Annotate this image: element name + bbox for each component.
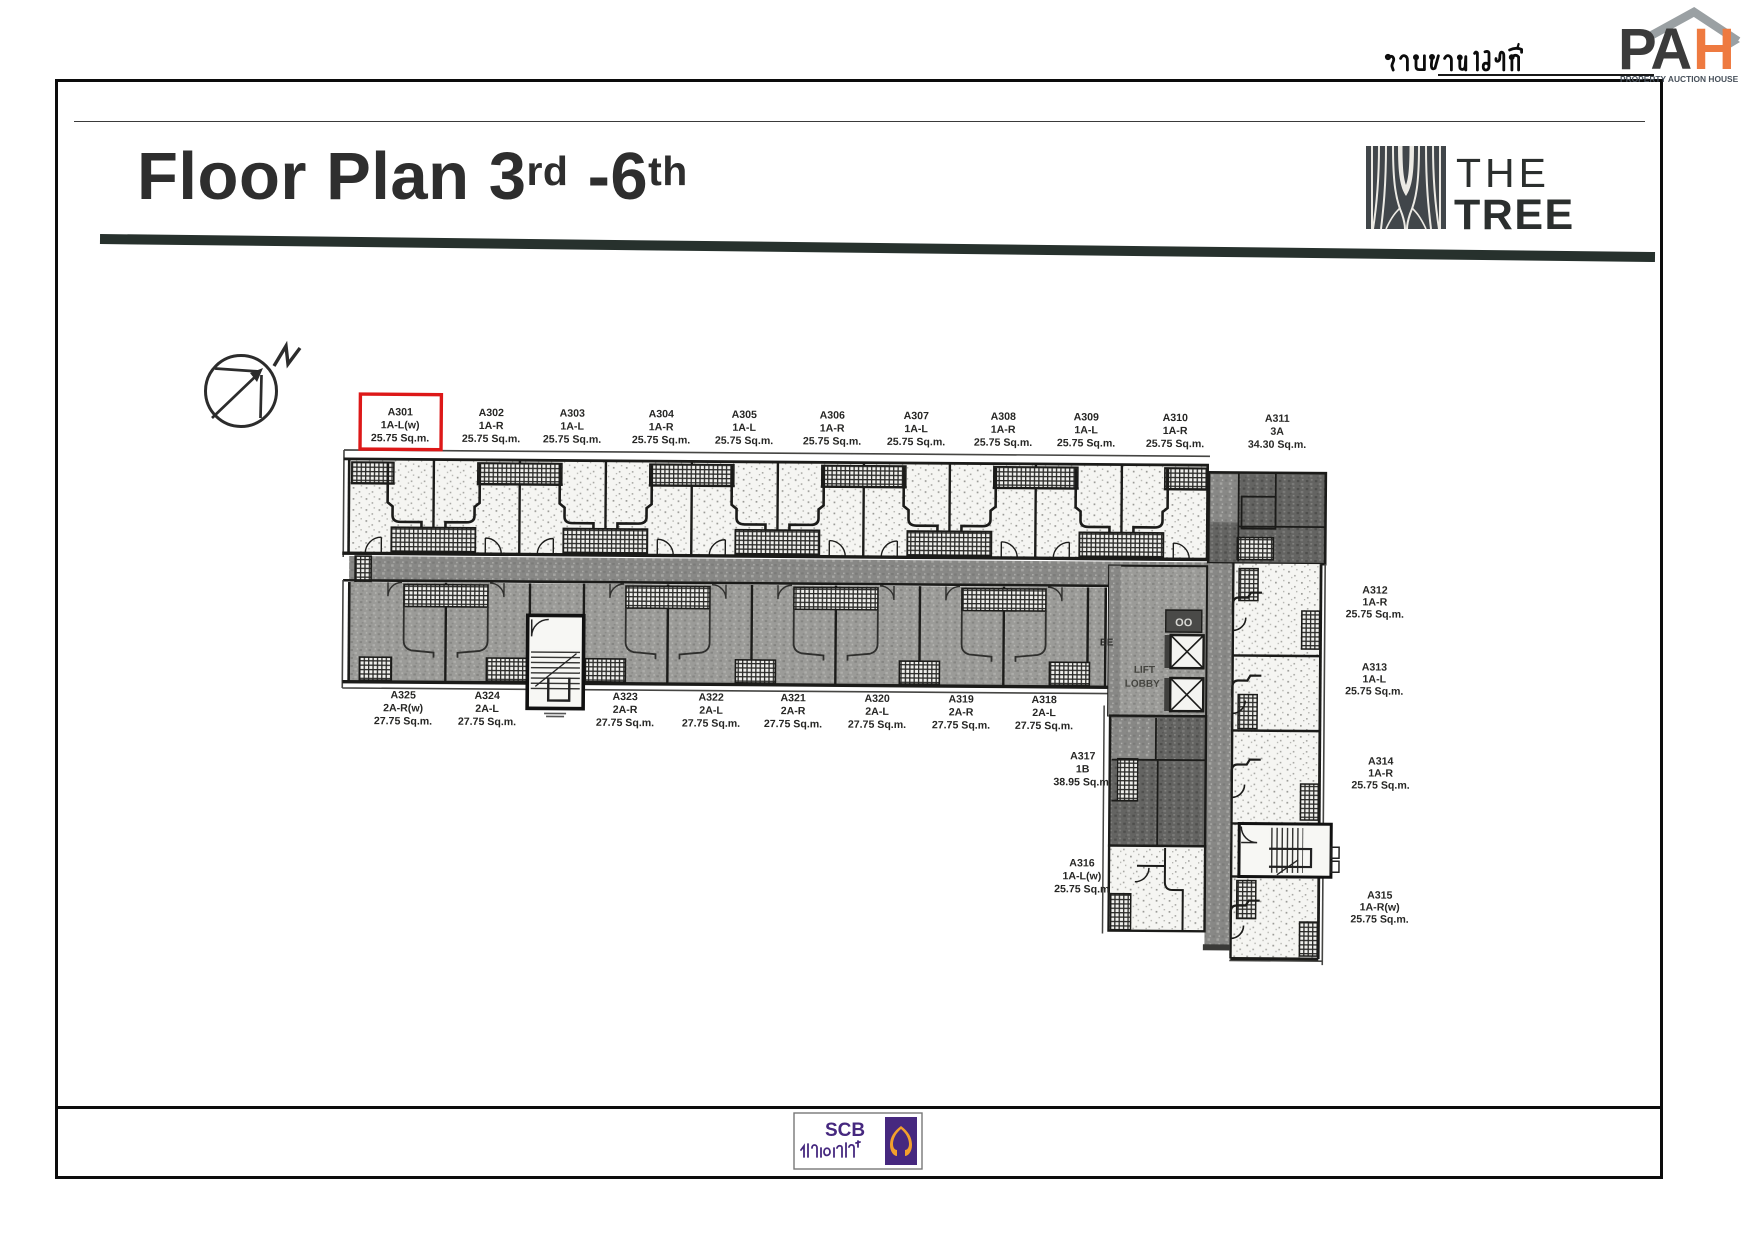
svg-text:25.75 Sq.m.: 25.75 Sq.m. [1350, 913, 1408, 925]
svg-text:1A-L: 1A-L [560, 421, 584, 433]
svg-text:A311: A311 [1265, 413, 1290, 425]
svg-text:2A-R(w): 2A-R(w) [383, 702, 423, 714]
svg-text:1B: 1B [1076, 763, 1090, 775]
svg-text:25.75 Sq.m.: 25.75 Sq.m. [462, 433, 520, 445]
svg-text:PA: PA [1618, 17, 1691, 82]
svg-text:A312: A312 [1362, 584, 1388, 596]
svg-text:A307: A307 [904, 410, 930, 422]
svg-text:1A-R(w): 1A-R(w) [1360, 901, 1400, 913]
svg-text:A310: A310 [1163, 412, 1189, 424]
svg-text:A309: A309 [1074, 411, 1100, 423]
svg-text:27.75 Sq.m.: 27.75 Sq.m. [848, 719, 906, 731]
svg-text:25.75 Sq.m.: 25.75 Sq.m. [1057, 437, 1115, 449]
svg-text:A321: A321 [780, 692, 806, 704]
svg-text:A320: A320 [864, 693, 890, 705]
svg-text:LIFT: LIFT [1134, 665, 1155, 676]
svg-text:A319: A319 [948, 693, 974, 705]
svg-text:A325: A325 [390, 689, 416, 701]
svg-text:25.75 Sq.m.: 25.75 Sq.m. [974, 437, 1032, 449]
svg-text:A302: A302 [479, 407, 505, 419]
svg-text:2A-R: 2A-R [781, 705, 806, 717]
svg-text:25.75 Sq.m.: 25.75 Sq.m. [803, 435, 861, 447]
svg-text:25.75 Sq.m.: 25.75 Sq.m. [371, 432, 429, 444]
svg-text:25.75 Sq.m.: 25.75 Sq.m. [1346, 608, 1404, 620]
svg-text:3A: 3A [1270, 426, 1284, 438]
svg-text:1A-R: 1A-R [991, 424, 1016, 436]
svg-text:25.75 Sq.m.: 25.75 Sq.m. [1345, 685, 1403, 697]
svg-text:THE: THE [1456, 150, 1550, 196]
svg-text:LOBBY: LOBBY [1125, 679, 1160, 690]
svg-text:2A-R: 2A-R [949, 706, 974, 718]
svg-text:A314: A314 [1368, 755, 1394, 767]
svg-text:27.75 Sq.m.: 27.75 Sq.m. [764, 718, 822, 730]
svg-text:1A-L: 1A-L [904, 423, 928, 435]
svg-text:1A-L(w): 1A-L(w) [381, 419, 420, 431]
svg-text:27.75 Sq.m.: 27.75 Sq.m. [1015, 720, 1073, 732]
svg-text:1A-R: 1A-R [479, 420, 504, 432]
svg-text:A301: A301 [388, 406, 414, 418]
svg-text:A322: A322 [698, 692, 724, 704]
svg-text:OO: OO [1175, 617, 1193, 629]
svg-text:A308: A308 [991, 411, 1017, 423]
svg-text:A324: A324 [474, 690, 500, 702]
svg-text:A315: A315 [1367, 889, 1393, 901]
svg-text:1A-R: 1A-R [820, 422, 845, 434]
svg-text:2A-L: 2A-L [475, 703, 499, 715]
svg-text:A304: A304 [649, 408, 675, 420]
svg-text:1A-L: 1A-L [732, 422, 756, 434]
svg-text:25.75 Sq.m.: 25.75 Sq.m. [1146, 438, 1204, 450]
svg-text:2A-L: 2A-L [1032, 707, 1056, 719]
svg-text:1A-R: 1A-R [1368, 767, 1393, 779]
svg-text:A318: A318 [1031, 694, 1057, 706]
svg-text:A306: A306 [820, 409, 846, 421]
svg-text:EE: EE [1100, 638, 1114, 649]
svg-text:2A-L: 2A-L [699, 705, 723, 717]
svg-text:25.75 Sq.m.: 25.75 Sq.m. [715, 435, 773, 447]
svg-text:25.75 Sq.m.: 25.75 Sq.m. [1351, 779, 1409, 791]
svg-text:1A-L: 1A-L [1363, 673, 1387, 685]
svg-text:27.75 Sq.m.: 27.75 Sq.m. [932, 719, 990, 731]
svg-text:A313: A313 [1362, 661, 1388, 673]
svg-text:25.75 Sq.m.: 25.75 Sq.m. [887, 436, 945, 448]
svg-text:SCB: SCB [825, 1120, 865, 1141]
svg-text:27.75 Sq.m.: 27.75 Sq.m. [596, 717, 654, 729]
svg-text:A316: A316 [1069, 857, 1095, 869]
svg-text:1A-R: 1A-R [1362, 596, 1387, 608]
svg-text:34.30 Sq.m.: 34.30 Sq.m. [1248, 439, 1306, 451]
svg-text:H: H [1693, 17, 1735, 82]
svg-text:27.75 Sq.m.: 27.75 Sq.m. [682, 717, 740, 729]
svg-text:A305: A305 [732, 409, 758, 421]
svg-text:A317: A317 [1070, 750, 1096, 762]
svg-text:25.75 Sq.m.: 25.75 Sq.m. [632, 434, 690, 446]
svg-text:2A-R: 2A-R [613, 704, 638, 716]
svg-text:27.75 Sq.m.: 27.75 Sq.m. [458, 716, 516, 728]
svg-text:25.75 Sq.m: 25.75 Sq.m [1054, 883, 1109, 895]
svg-text:1A-R: 1A-R [649, 421, 674, 433]
svg-text:2A-L: 2A-L [865, 706, 889, 718]
svg-text:25.75 Sq.m.: 25.75 Sq.m. [543, 433, 601, 445]
svg-text:38.95 Sq.m.: 38.95 Sq.m. [1053, 776, 1111, 788]
svg-text:A323: A323 [612, 691, 638, 703]
svg-text:TREE: TREE [1454, 191, 1575, 239]
svg-text:1A-L(w): 1A-L(w) [1062, 870, 1101, 882]
svg-text:A303: A303 [560, 408, 586, 420]
svg-text:27.75 Sq.m.: 27.75 Sq.m. [374, 715, 432, 727]
svg-text:1A-L: 1A-L [1074, 424, 1098, 436]
svg-text:1A-R: 1A-R [1163, 425, 1188, 437]
